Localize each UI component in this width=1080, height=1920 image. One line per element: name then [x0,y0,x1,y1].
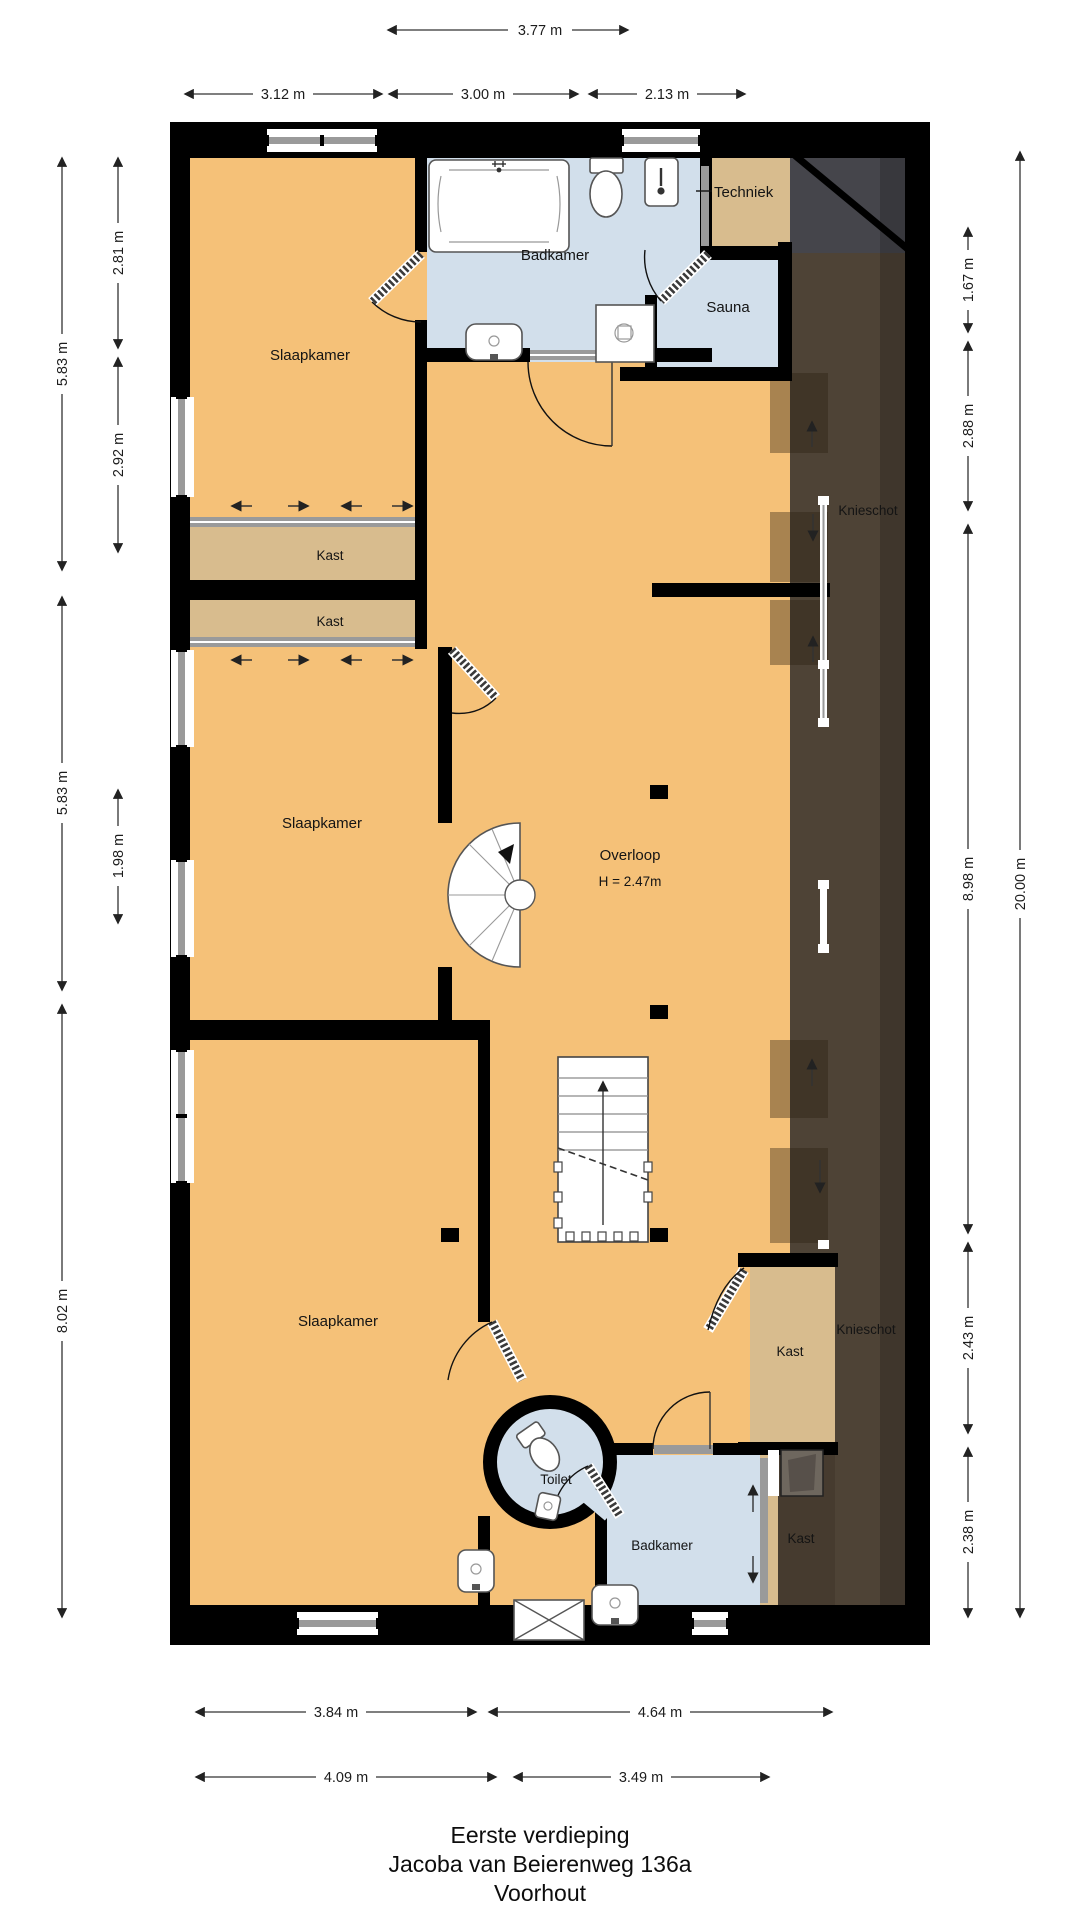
label-badkamer-bottom: Badkamer [631,1538,693,1553]
floor-areas [190,150,910,1605]
dim-left-inner-top: 2.81 m [111,231,127,275]
dim-top-right: 2.13 m [645,87,689,103]
dim-left-outer-mid: 5.83 m [55,771,71,815]
label-kast-badkamer: Kast [787,1531,814,1546]
dim-top-overall: 3.77 m [518,23,562,39]
label-slaapkamer-bottom: Slaapkamer [298,1313,378,1330]
dim-left-outer-bottom: 8.02 m [55,1289,71,1333]
dim-bottom-row1-left: 3.84 m [314,1705,358,1721]
dim-right-seg2: 2.88 m [961,404,977,448]
floor-plan: Slaapkamer Badkamer Techniek Sauna Knies… [0,0,1080,1920]
label-toilet: Toilet [540,1472,572,1487]
label-techniek: Techniek [714,184,774,201]
dim-bottom-row2-left: 4.09 m [324,1770,368,1786]
sink-icon [592,1585,638,1625]
label-badkamer-top: Badkamer [521,247,589,264]
dim-left-outer-top: 5.83 m [55,342,71,386]
small-sink-icon [535,1492,562,1521]
room-kast-upper [190,527,415,580]
dim-top-left: 3.12 m [261,87,305,103]
window-icon [171,648,194,749]
title-line2: Jacoba van Beierenweg 136a [388,1851,691,1877]
window-icon [171,858,194,959]
dim-top-middle: 3.00 m [461,87,505,103]
dim-left-inner-low: 1.98 m [111,834,127,878]
wall-toilet-icon [590,158,623,217]
title-block: Eerste verdieping Jacoba van Beierenweg … [388,1822,691,1906]
label-overloop-height: H = 2.47m [599,874,662,889]
dim-right-seg5: 2.38 m [961,1510,977,1554]
toilet-room [490,1402,620,1522]
label-kast-upper: Kast [316,548,343,563]
window-icon [295,1612,380,1635]
label-slaapkamer-top: Slaapkamer [270,347,350,364]
window-icon [690,1612,730,1635]
sink-icon [466,324,522,360]
dim-bottom-row2-right: 3.49 m [619,1770,663,1786]
shower-icon [596,305,654,362]
dim-left-inner-mid: 2.92 m [111,433,127,477]
label-overloop: Overloop [600,847,661,864]
window-icon [171,1048,194,1185]
dim-bottom-row1-right: 4.64 m [638,1705,682,1721]
wardrobe-icon [768,1450,823,1496]
label-slaapkamer-mid: Slaapkamer [282,815,362,832]
staircase [554,1057,652,1242]
dim-right-seg1: 1.67 m [961,258,977,302]
room-techniek [707,158,790,250]
label-knieschot-bottom: Knieschot [836,1322,896,1337]
title-line3: Voorhout [494,1880,587,1906]
washing-machine-icon [514,1600,584,1640]
dim-right-overall: 20.00 m [1013,858,1029,910]
label-knieschot-top: Knieschot [838,503,898,518]
dim-right-seg3: 8.98 m [961,857,977,901]
sink-icon [458,1550,494,1592]
window-icon [265,129,379,152]
window-icon [620,129,702,152]
boiler-icon [645,158,678,206]
dim-right-seg4: 2.43 m [961,1316,977,1360]
bathtub-icon [429,160,569,252]
label-kast-lower: Kast [316,614,343,629]
room-badkamer-bottom [607,1455,760,1605]
label-kast-bottom-right: Kast [776,1344,803,1359]
title-line1: Eerste verdieping [451,1822,630,1848]
window-icon [171,395,194,499]
label-sauna: Sauna [706,299,750,316]
